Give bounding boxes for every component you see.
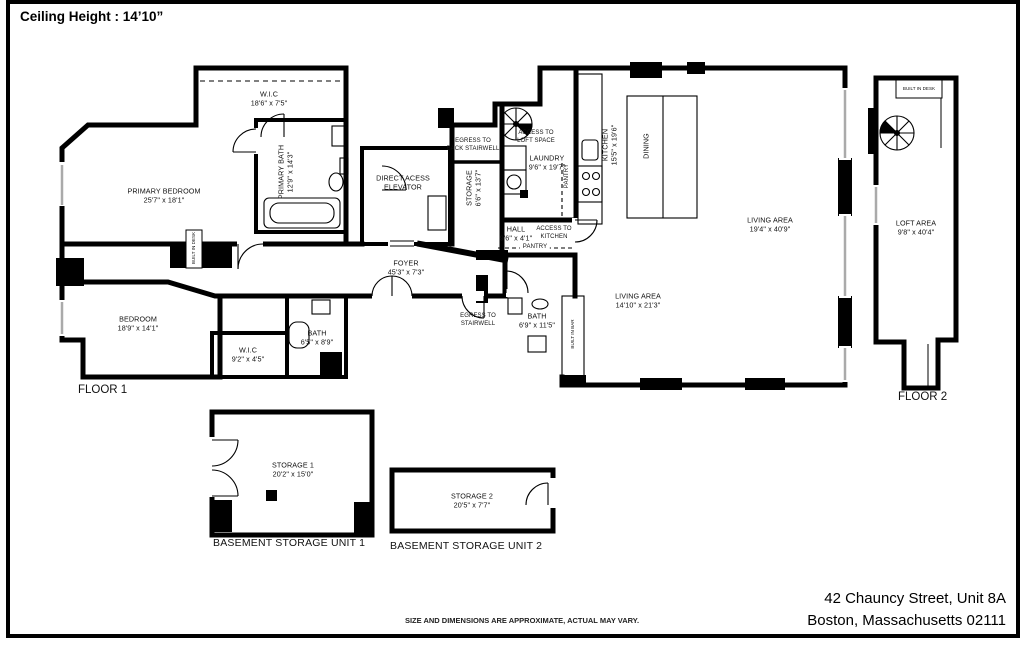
room-label-bath-hall: BATH6'9" x 11'5": [519, 312, 555, 331]
room-label-storage1: STORAGE 120'2" x 15'0": [272, 461, 314, 480]
room-label-dining: DINING: [641, 133, 650, 159]
window-lines: [62, 90, 876, 380]
room-label-living-main: LIVING AREA19'4" x 40'9": [747, 216, 793, 235]
spiral-staircase-icon: [880, 116, 914, 150]
room-label-primary-bath: PRIMARY BATH12'9" x 14'3": [277, 145, 296, 199]
basement-unit1-caption: BASEMENT STORAGE UNIT 1: [213, 537, 365, 549]
floor2-label: FLOOR 2: [898, 391, 947, 403]
label-access-to-kitchen: ACCESS TOKITCHEN: [536, 226, 571, 242]
basement-unit2-caption: BASEMENT STORAGE UNIT 2: [390, 540, 542, 552]
stove-icon: [578, 166, 602, 202]
washer-dryer-icon: [503, 146, 526, 194]
floor1-label: FLOOR 1: [78, 384, 127, 396]
room-label-kitchen: KITCHEN15'5" x 19'6": [601, 125, 620, 166]
room-label-storage2: STORAGE 220'5" x 7'7": [451, 492, 493, 511]
room-label-laundry: LAUNDRY9'6" x 19'7": [529, 154, 566, 173]
floorplan-page: Ceiling Height : 14’10” PRIMARY BEDROOM2…: [0, 0, 1024, 655]
elevator-cab-icon: [428, 196, 446, 230]
room-label-storage: STORAGE6'6" x 13'7": [465, 170, 484, 207]
room-label-wic-bedroom: W.I.C9'2" x 4'5": [232, 346, 265, 365]
label-built-in-desk: BUILT IN DESK: [191, 232, 197, 264]
label-access-to-loft: ACCESS TOLOFT SPACE: [517, 130, 555, 146]
label-loft-built-in-desk: BUILT IN DESK: [903, 86, 935, 92]
dining-table-icon: [627, 96, 697, 218]
disclaimer-text: SIZE AND DIMENSIONS ARE APPROXIMATE, ACT…: [405, 616, 639, 625]
room-label-hall: HALL9'6" x 4'1": [500, 225, 533, 244]
room-label-living-second: LIVING AREA14'10" x 21'3": [615, 292, 661, 311]
room-label-pantry: PANTRY: [564, 164, 572, 188]
room-label-elevator: DIRECT ACESSELEVATOR: [376, 174, 430, 193]
sink-icon: [312, 300, 330, 314]
room-label-bath-bedroom: BATH6'5" x 8'9": [301, 329, 334, 348]
door-swing-icon: [526, 483, 548, 505]
label-egress-to-stairwell: EGRESS TOSTAIRWELL: [460, 313, 496, 329]
room-label-primary-bedroom: PRIMARY BEDROOM25'7" x 18'1": [127, 187, 200, 206]
address-line1: 42 Chauncy Street, Unit 8A: [807, 588, 1006, 610]
door-swing-icon: [261, 114, 284, 137]
address-line2: Boston, Massachusetts 02111: [807, 610, 1006, 632]
room-label-loft: LOFT AREA9'8" x 40'4": [896, 219, 936, 238]
bathtub-icon: [264, 198, 340, 228]
room-label-wic-top: W.I.C18'6" x 7'5": [251, 90, 288, 109]
room-label-foyer: FOYER45'3" x 7'3": [388, 259, 425, 278]
ceiling-height-note: Ceiling Height : 14’10”: [20, 9, 163, 24]
room-label-egress-back-stairwell: EGRESS TOBACK STAIRWELL: [447, 138, 500, 154]
room-label-bedroom: BEDROOM18'9" x 14'1": [118, 315, 159, 334]
property-address: 42 Chauncy Street, Unit 8A Boston, Massa…: [807, 588, 1006, 632]
label-built-in-bar: BUILT IN BAR: [570, 319, 576, 348]
room-label-pantry-hall: PANTRY: [520, 244, 550, 252]
